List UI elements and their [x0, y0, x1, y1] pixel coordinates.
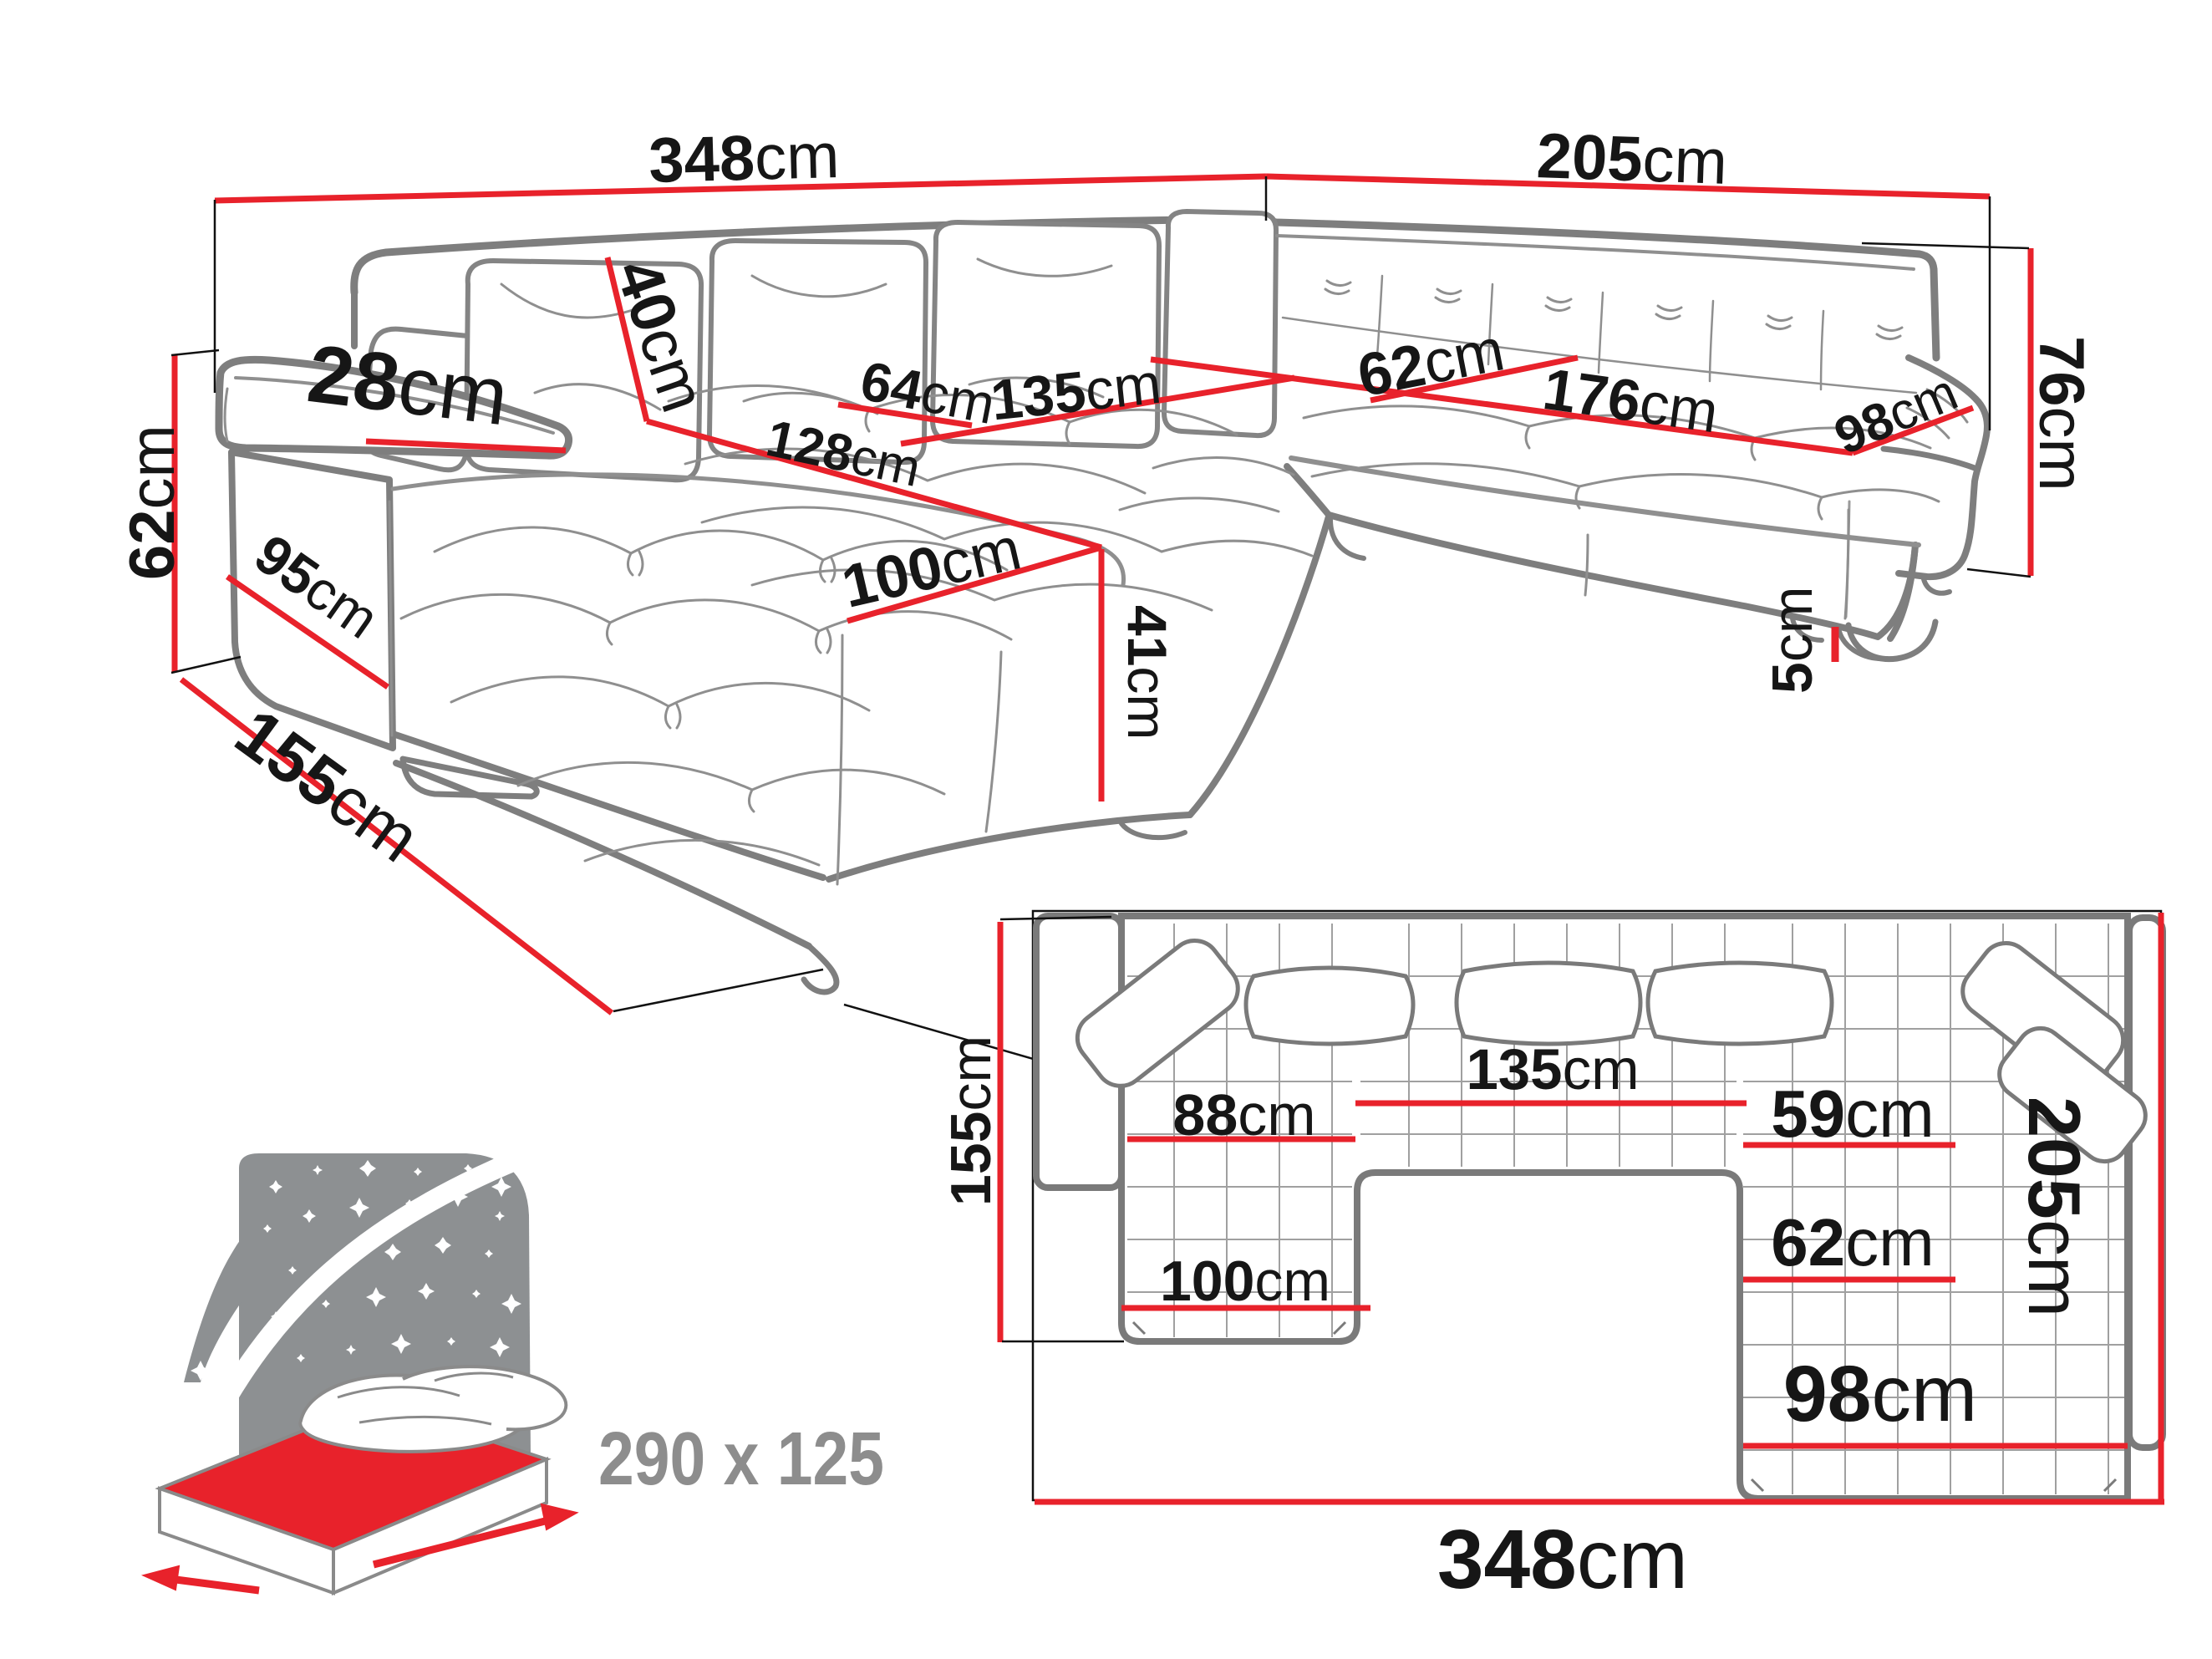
svg-text:176cm: 176cm — [1539, 356, 1722, 445]
svg-text:98cm: 98cm — [1783, 1350, 1977, 1438]
svg-text:348cm: 348cm — [648, 120, 840, 196]
svg-text:290 x 125: 290 x 125 — [598, 1417, 884, 1501]
svg-text:41cm: 41cm — [1116, 605, 1178, 740]
svg-text:348cm: 348cm — [1437, 1513, 1688, 1606]
svg-text:100cm: 100cm — [836, 515, 1027, 621]
svg-text:76cm: 76cm — [2026, 336, 2097, 491]
svg-text:62cm: 62cm — [1771, 1205, 1935, 1280]
svg-text:88cm: 88cm — [1172, 1082, 1315, 1148]
svg-text:205cm: 205cm — [1535, 120, 1728, 198]
svg-text:5cm: 5cm — [1761, 587, 1824, 694]
svg-text:135cm: 135cm — [1466, 1037, 1639, 1102]
svg-text:155cm: 155cm — [939, 1036, 1003, 1206]
svg-text:59cm: 59cm — [1771, 1076, 1935, 1151]
svg-text:205cm: 205cm — [2013, 1097, 2096, 1317]
svg-text:62cm: 62cm — [117, 425, 188, 580]
svg-text:100cm: 100cm — [1160, 1249, 1330, 1313]
